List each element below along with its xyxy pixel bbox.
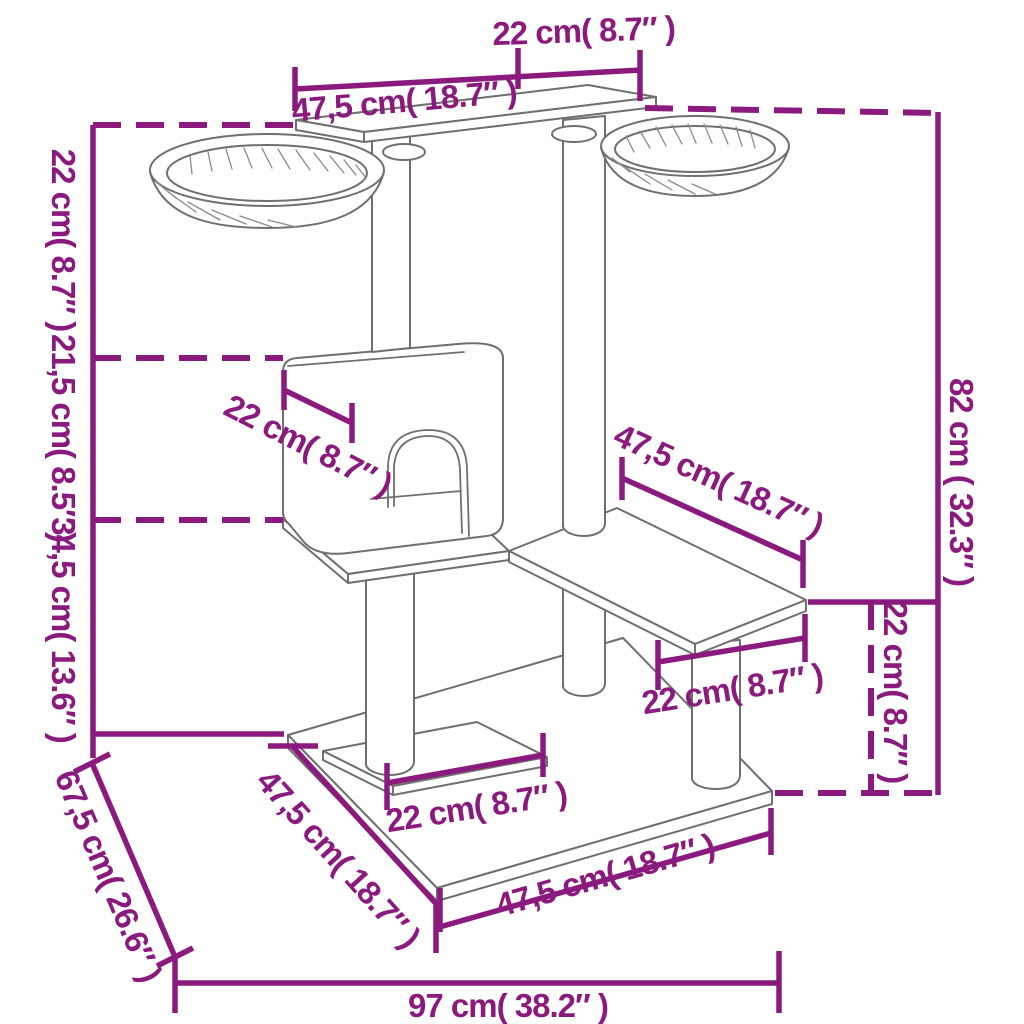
dim-overall-height: 82 cm ( 32.3″ ): [938, 112, 980, 795]
dim-overall-height-label: 82 cm ( 32.3″ ): [943, 378, 980, 586]
right-bowl-mount-ring: [552, 126, 596, 142]
left-bowl-mount-ring: [383, 144, 425, 160]
right-upper-post: [563, 116, 605, 536]
dim-base-depth: 67,5 cm( 26.6″ ): [48, 754, 193, 987]
dim-overall-width-label: 97 cm( 38.2″ ): [408, 987, 608, 1024]
dim-left-heights: 22 cm( 8.7″ ) 21,5 cm( 8.5″ ) 34,5 cm( 1…: [45, 125, 93, 758]
scratching-post-under-platform: [692, 640, 740, 789]
dim-lower-height-label: 34,5 cm( 13.6″ ): [45, 517, 82, 742]
dim-overall-width: 97 cm( 38.2″ ): [175, 951, 779, 1024]
cat-tree-dimension-drawing: 22 cm( 8.7″ ) 47,5 cm( 18.7″ ) 22 cm( 8.…: [0, 0, 1024, 1024]
dim-top-width-label: 22 cm( 8.7″ ): [492, 9, 676, 52]
dim-upper-height-label: 22 cm( 8.7″ ): [45, 149, 82, 332]
middle-platform: [509, 508, 806, 655]
dim-platform-drop-label: 22 cm( 8.7″ ): [877, 601, 914, 784]
dim-house-height-label: 21,5 cm( 8.5″ ): [45, 334, 82, 542]
dimension-diagram-page: 22 cm( 8.7″ ) 47,5 cm( 18.7″ ) 22 cm( 8.…: [0, 0, 1024, 1024]
scratching-post-under-house: [366, 552, 414, 775]
